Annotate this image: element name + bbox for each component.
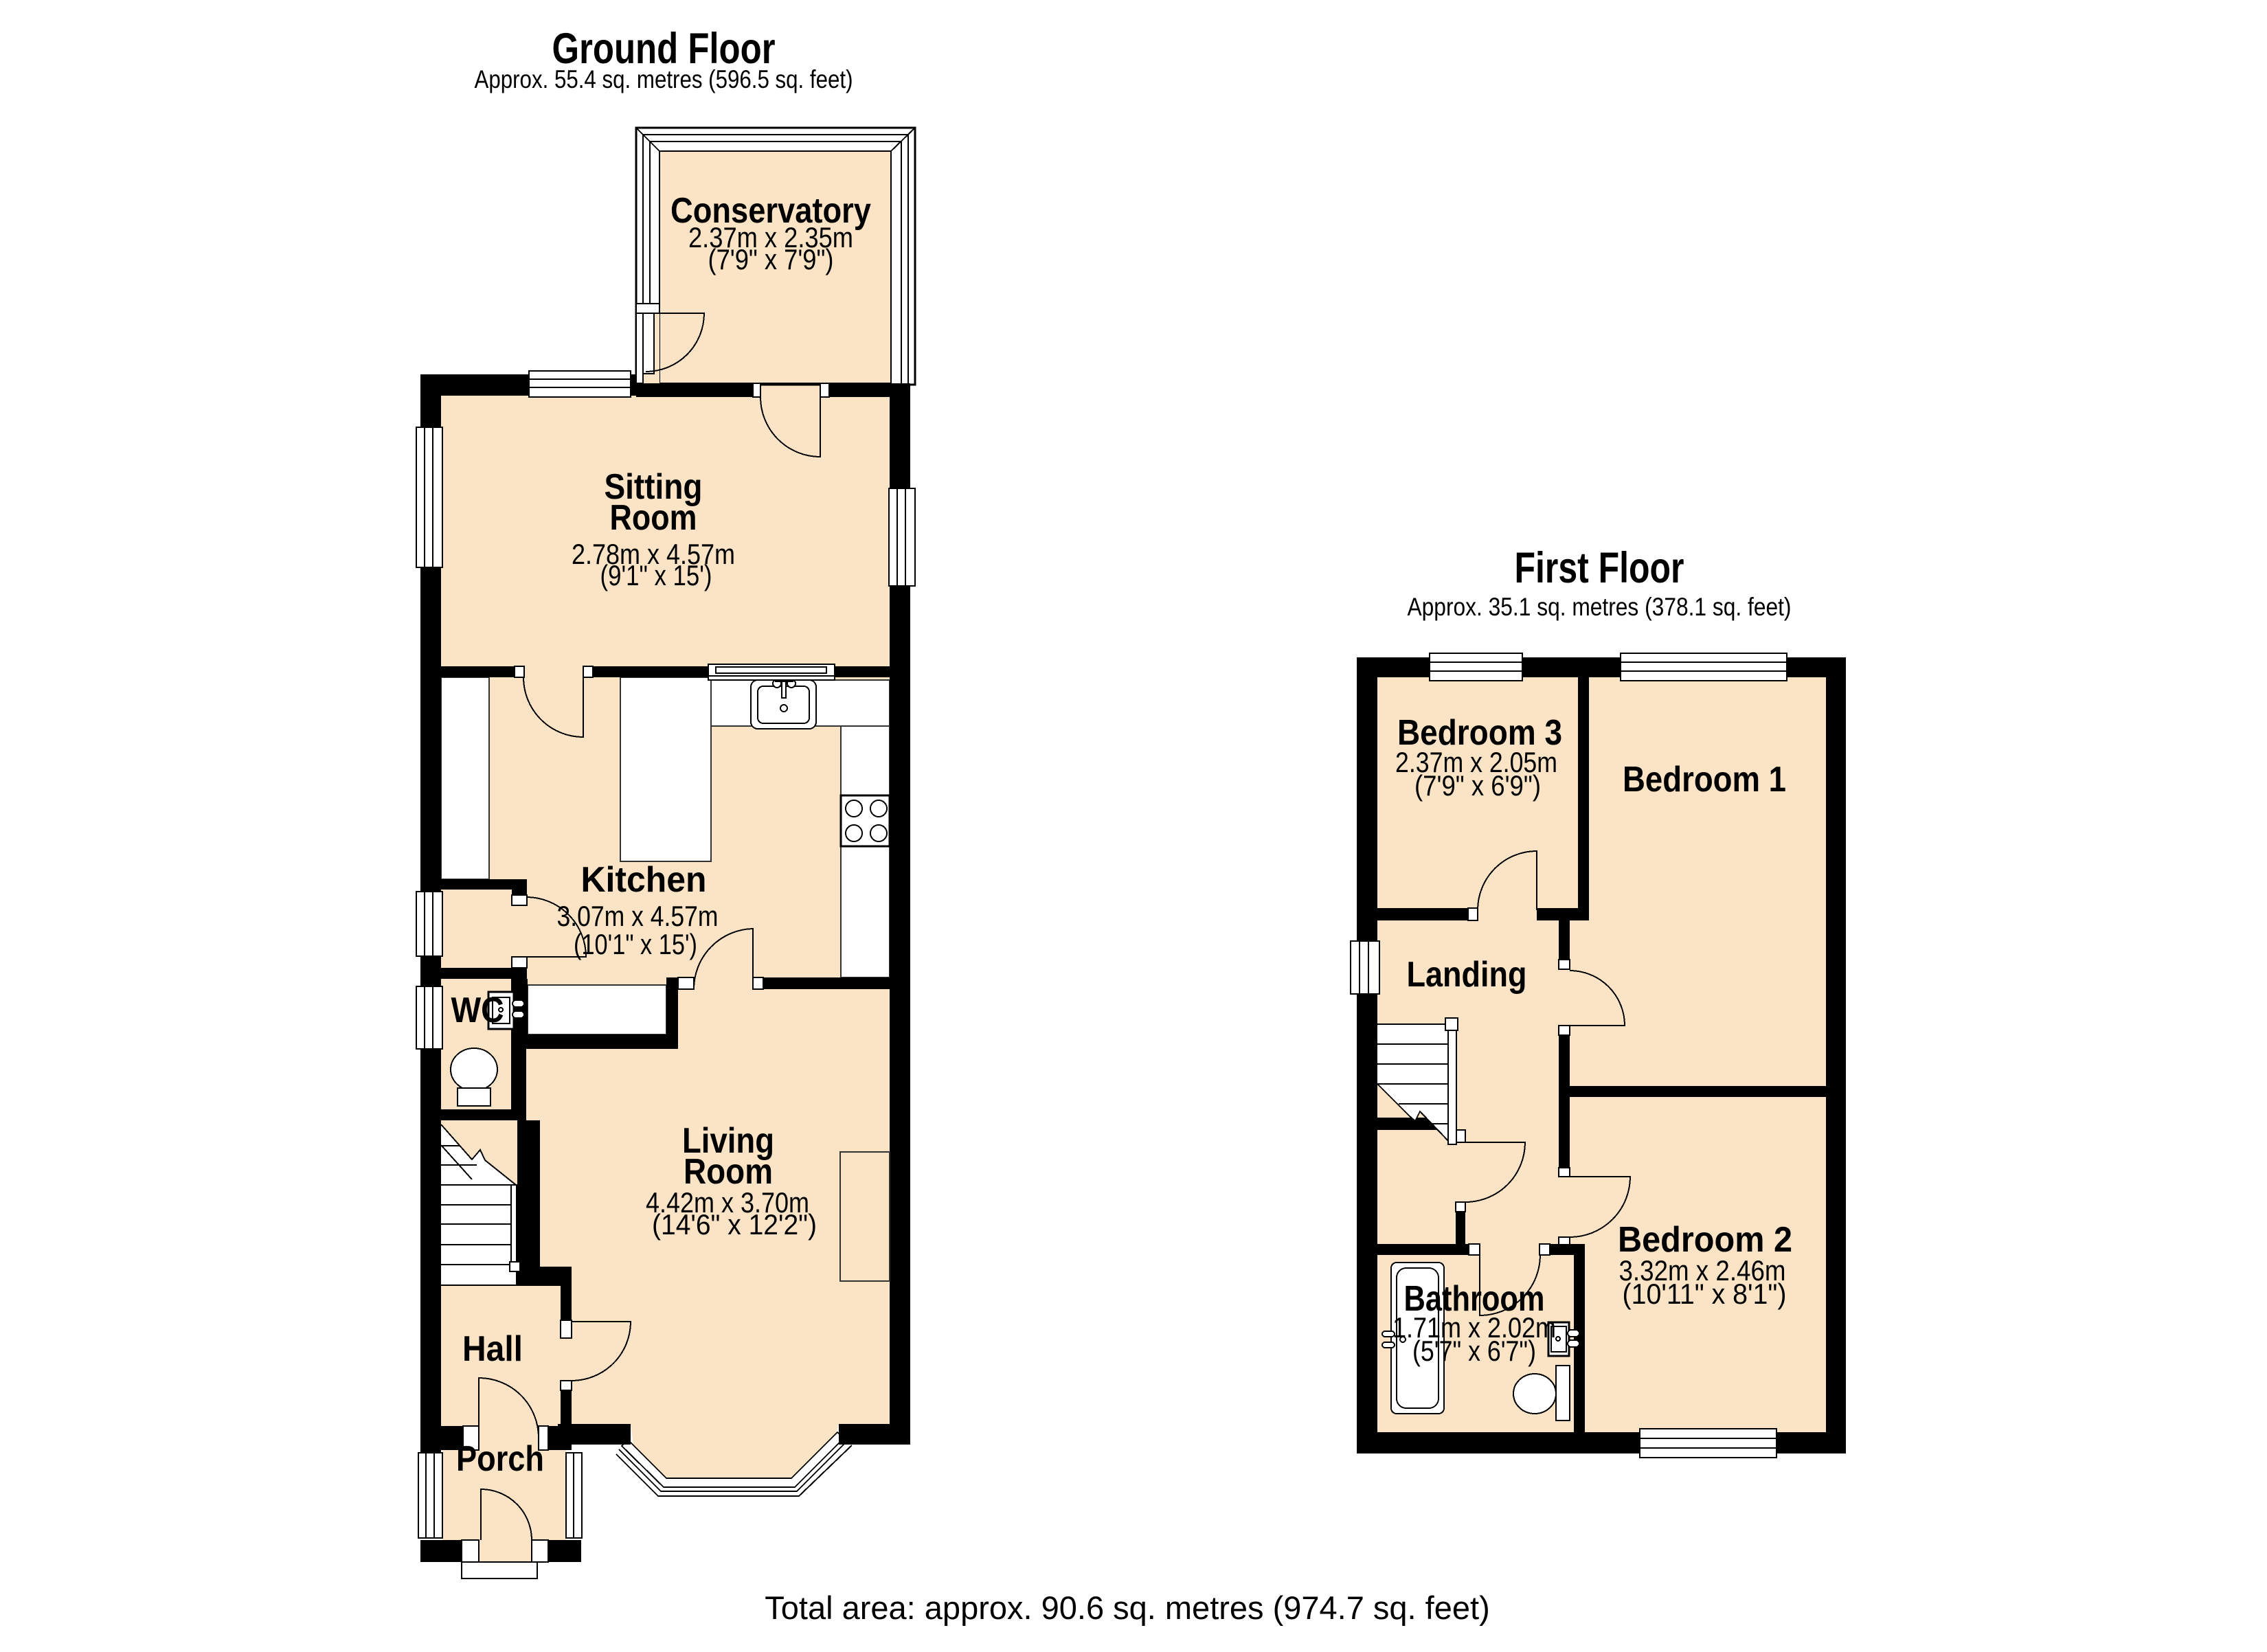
svg-text:(14'6" x 12'2"): (14'6" x 12'2")	[652, 1208, 817, 1241]
svg-text:WC: WC	[451, 991, 504, 1030]
svg-text:Room: Room	[610, 498, 697, 538]
svg-text:First Floor: First Floor	[1515, 544, 1684, 592]
svg-text:Approx. 35.1 sq. metres (378.1: Approx. 35.1 sq. metres (378.1 sq. feet)	[1408, 593, 1792, 621]
svg-text:Bedroom 1: Bedroom 1	[1623, 760, 1786, 800]
svg-text:Total area: approx. 90.6 sq. m: Total area: approx. 90.6 sq. metres (974…	[765, 1589, 1489, 1626]
svg-text:3.07m x 4.57m: 3.07m x 4.57m	[557, 900, 719, 932]
svg-text:(7'9" x 6'9"): (7'9" x 6'9")	[1414, 769, 1541, 802]
svg-text:Porch: Porch	[456, 1439, 544, 1479]
svg-text:(9'1" x 15'): (9'1" x 15')	[600, 559, 712, 591]
svg-text:Approx. 55.4 sq. metres (596.5: Approx. 55.4 sq. metres (596.5 sq. feet)	[475, 65, 853, 93]
svg-text:(5'7" x 6'7"): (5'7" x 6'7")	[1412, 1335, 1536, 1367]
svg-text:(10'11" x 8'1"): (10'11" x 8'1")	[1623, 1278, 1787, 1310]
svg-text:(10'1" x 15'): (10'1" x 15')	[574, 928, 697, 960]
svg-text:Hall: Hall	[462, 1329, 523, 1369]
svg-text:Kitchen: Kitchen	[581, 860, 707, 900]
svg-text:Landing: Landing	[1407, 955, 1527, 995]
svg-text:(7'9" x 7'9"): (7'9" x 7'9")	[708, 243, 834, 275]
